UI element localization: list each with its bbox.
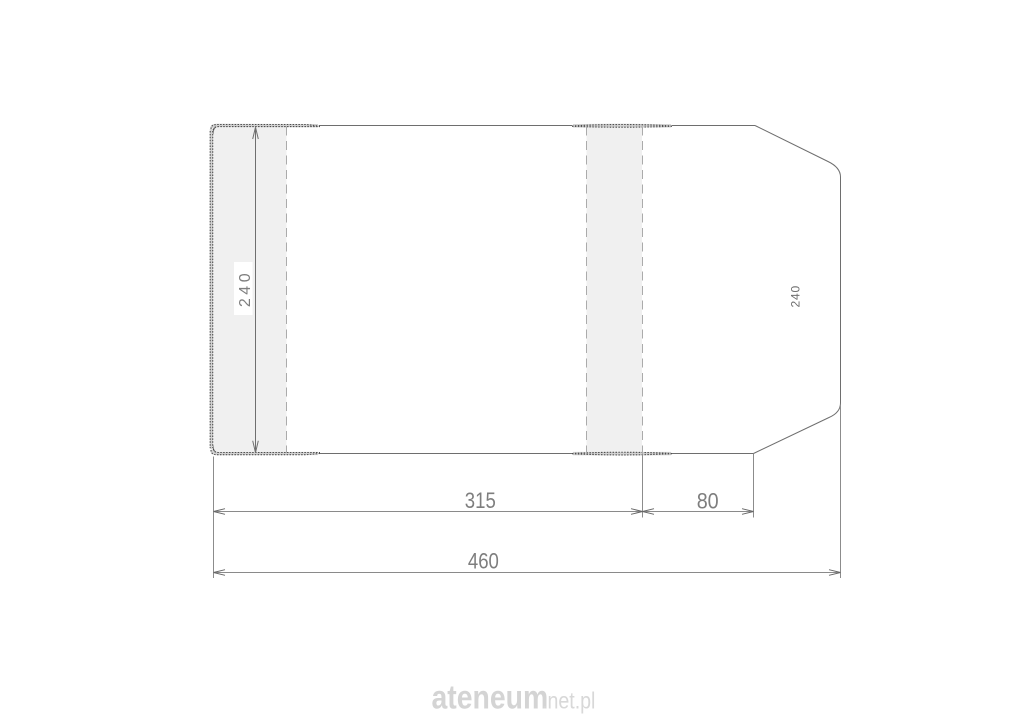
- svg-text:315: 315: [465, 488, 496, 513]
- svg-text:.net.pl: .net.pl: [542, 687, 595, 714]
- svg-text:80: 80: [697, 489, 719, 514]
- svg-text:ateneum: ateneum: [432, 678, 549, 716]
- svg-text:240: 240: [237, 270, 254, 307]
- svg-text:460: 460: [468, 548, 499, 573]
- svg-text:240: 240: [789, 285, 803, 307]
